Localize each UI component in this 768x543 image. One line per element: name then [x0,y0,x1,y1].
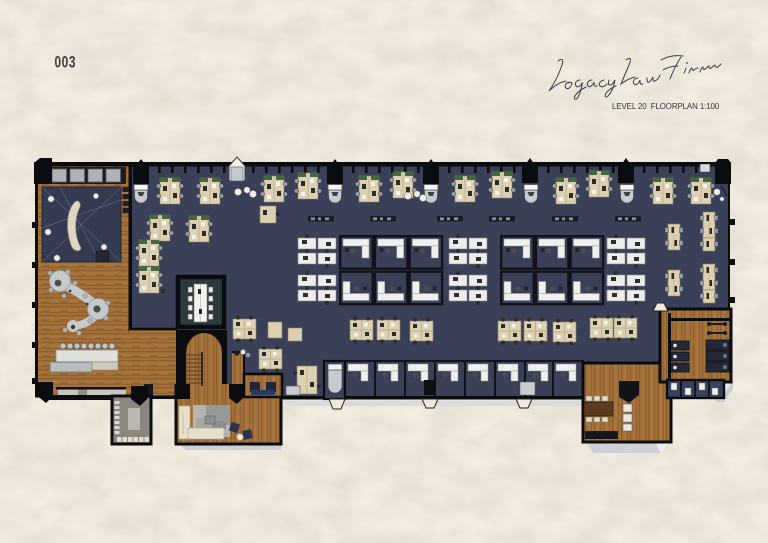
svg-text:003: 003 [54,54,76,72]
svg-text:LEVEL 20 FLOORPLAN 1:100: LEVEL 20 FLOORPLAN 1:100 [612,102,720,111]
